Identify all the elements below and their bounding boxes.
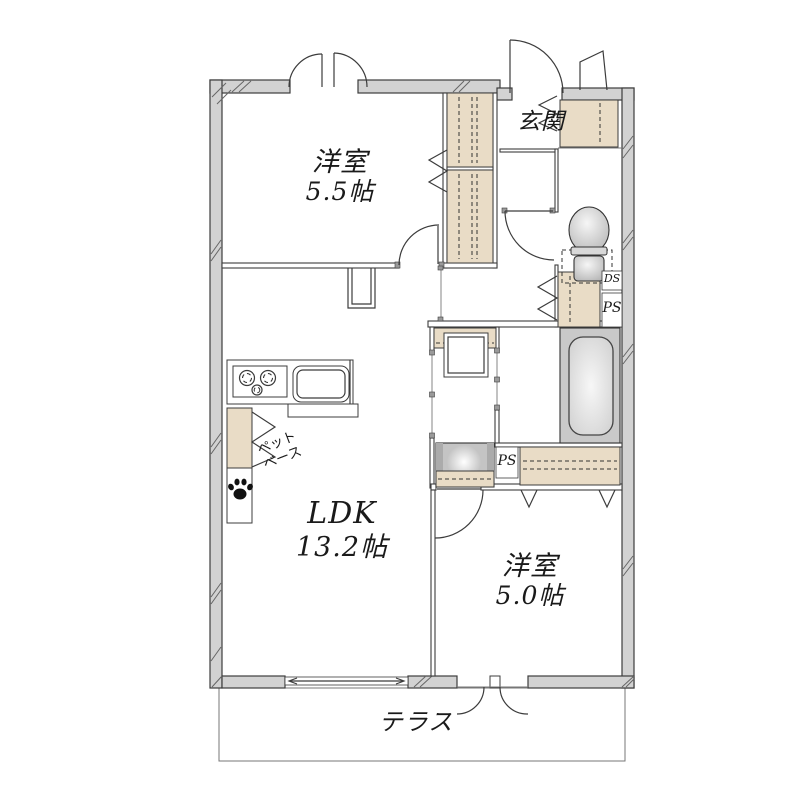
toilet-door [502,208,555,260]
room-name: 洋室 [468,551,592,582]
floorplan-drawing [0,0,800,800]
room-label-terrace: テラス [350,709,482,737]
duct-space-label: DS [601,273,623,286]
room-label-ldk: LDK 13.2帖 [276,497,408,563]
room-label-bedroom-a: 洋室 5.5帖 [278,147,402,207]
room-label-entrance: 玄関 [493,109,589,135]
room-name: テラス [350,709,482,737]
stove-icon [233,366,287,397]
room-label-bedroom-b: 洋室 5.0帖 [468,551,592,611]
ldk-sliding-window [285,677,408,685]
room-name: 洋室 [278,147,402,178]
bedroom-b-door [435,489,483,538]
duct-pillar [348,268,375,308]
pipe-space-label-bath: PS [495,453,519,469]
room-name: 玄関 [493,109,589,135]
pipe-space-label-hall: PS [601,300,623,316]
room-name: LDK [276,497,408,532]
hall-ldk-opening [438,266,443,321]
room-size: 5.5帖 [278,178,402,207]
double-casement-doors-top [289,53,367,87]
bathtub-icon [560,328,620,443]
bedroom-a-door [395,225,444,268]
room-size: 5.0帖 [468,582,592,611]
washroom-sliding-door [430,350,435,438]
room-size: 13.2帖 [276,532,408,563]
entrance-door [510,40,607,93]
washing-machine-icon [436,443,494,487]
bathroom-door [495,348,500,410]
floorplan: 洋室 5.5帖 玄関 LDK 13.2帖 洋室 5.0帖 テラス DS PS P… [0,0,800,800]
sink-icon [293,366,349,402]
closet-bedroom-b [520,447,620,507]
washbasin-icon [434,328,496,377]
